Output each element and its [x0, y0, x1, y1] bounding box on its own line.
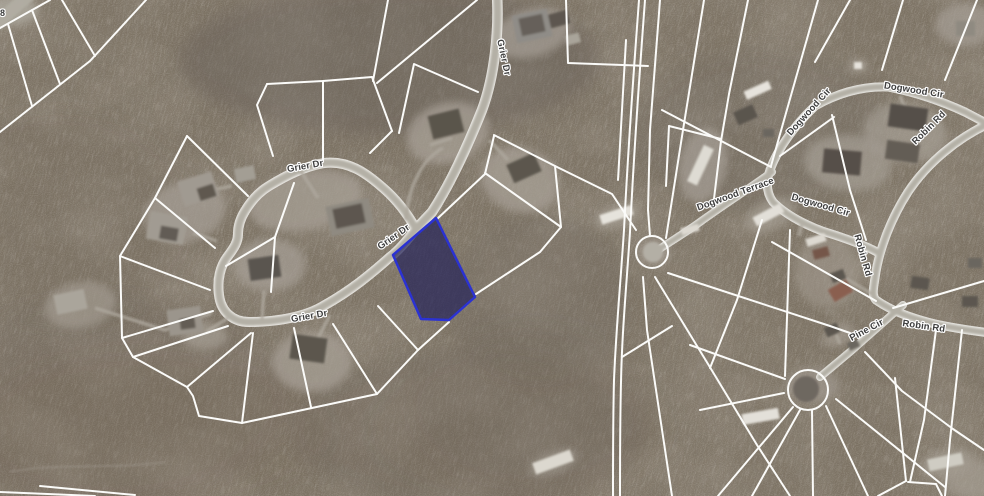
svg-text:8: 8	[0, 8, 5, 18]
